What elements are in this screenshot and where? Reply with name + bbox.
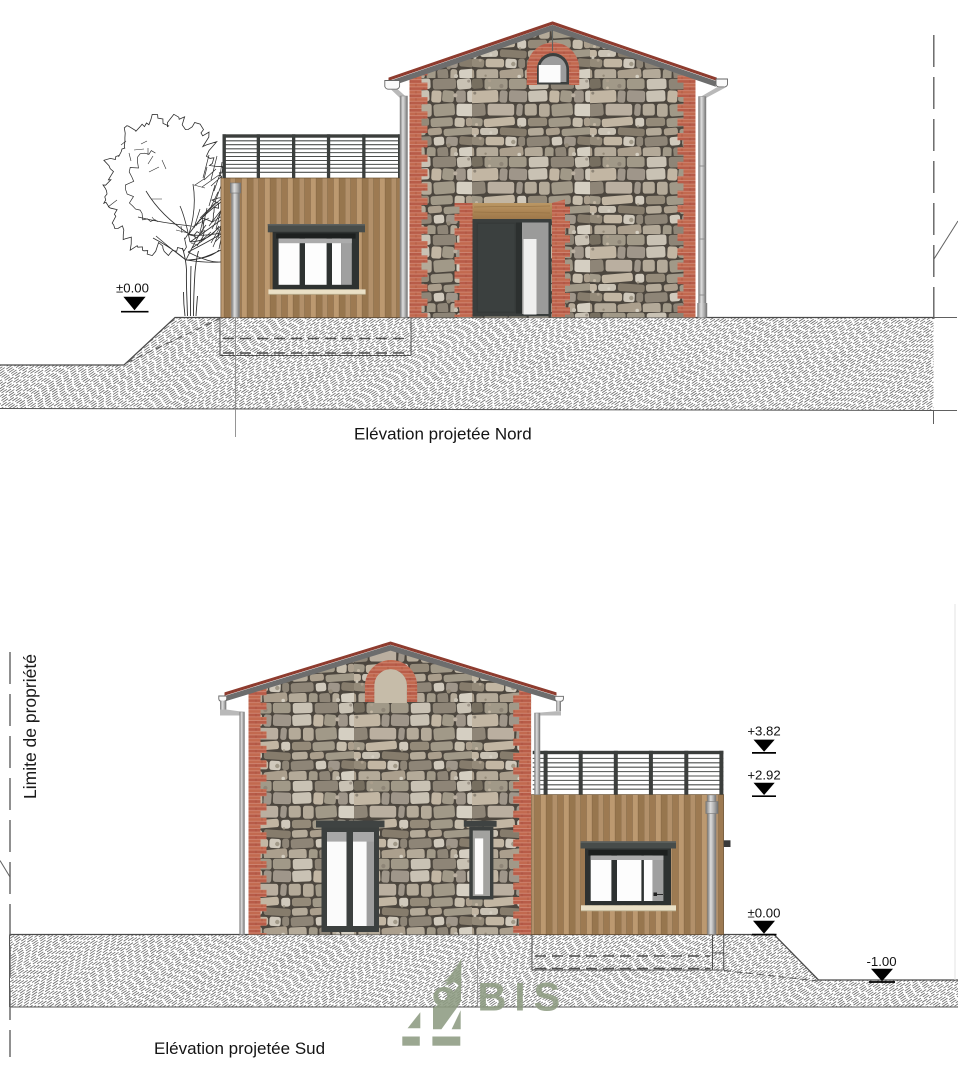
svg-text:+3.82: +3.82 — [747, 724, 780, 739]
svg-text:Limite de propriété: Limite de propriété — [20, 654, 40, 799]
svg-text:-1.00: -1.00 — [866, 954, 896, 969]
svg-text:±0.00: ±0.00 — [748, 906, 781, 921]
svg-text:Elévation projetée Sud: Elévation projetée Sud — [154, 1039, 325, 1058]
svg-text:BIS: BIS — [478, 976, 569, 1020]
svg-text:+2.92: +2.92 — [747, 768, 780, 783]
svg-text:±0.00: ±0.00 — [116, 281, 149, 296]
svg-text:Elévation projetée Nord: Elévation projetée Nord — [354, 425, 532, 444]
